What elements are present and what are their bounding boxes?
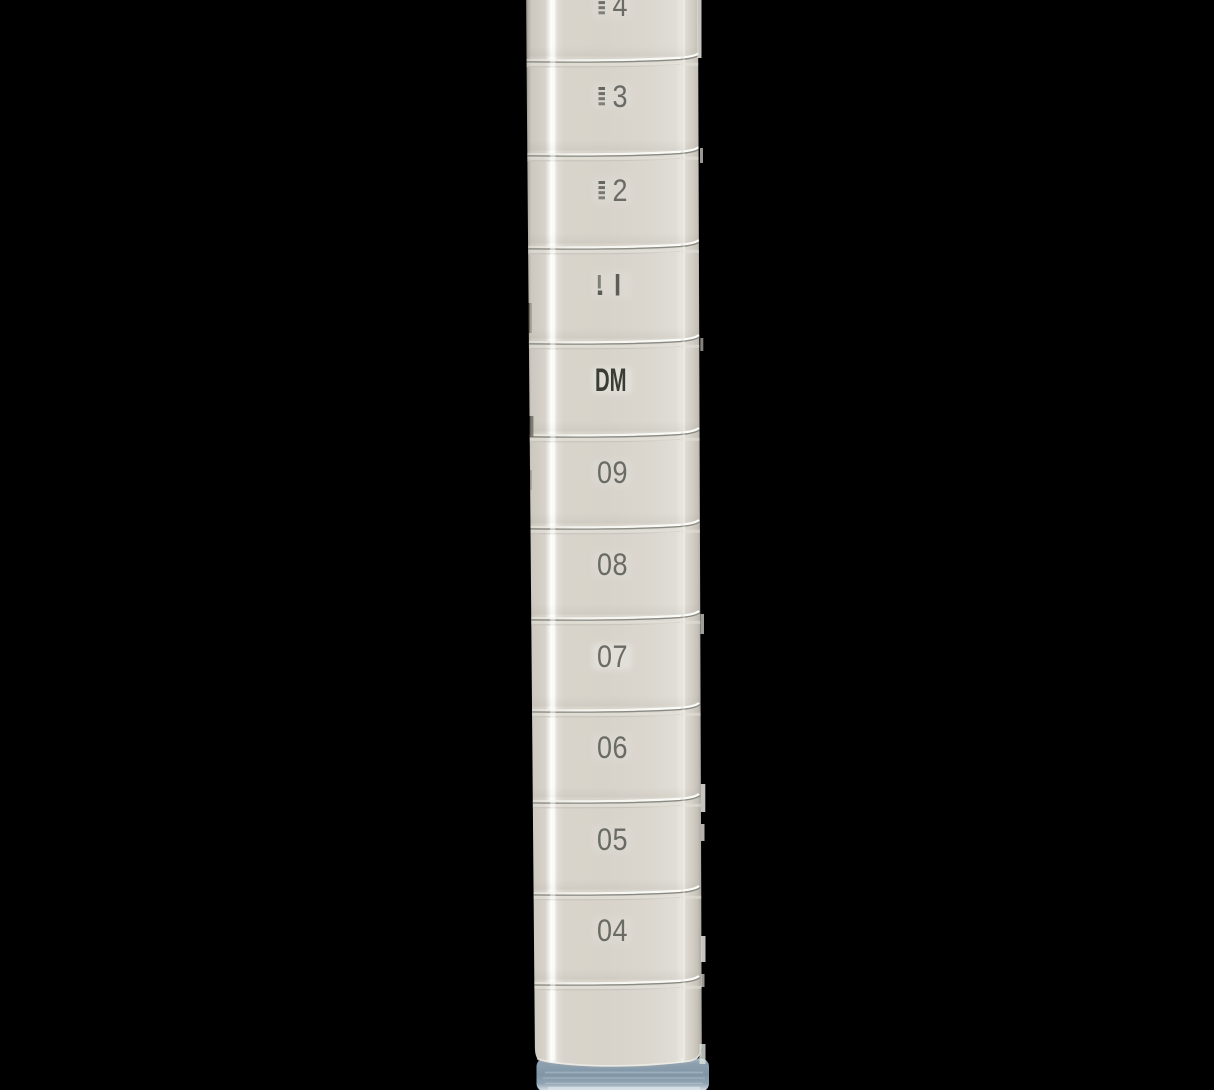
svg-text:07: 07	[597, 639, 628, 674]
svg-text:05: 05	[597, 822, 628, 857]
svg-text:3: 3	[613, 79, 628, 114]
svg-text:06: 06	[597, 730, 628, 765]
svg-text:2: 2	[613, 173, 628, 208]
svg-text:4: 4	[613, 0, 628, 24]
svg-text:DM: DM	[595, 362, 627, 398]
svg-text:08: 08	[597, 547, 628, 582]
svg-text:09: 09	[597, 455, 628, 490]
svg-text:04: 04	[597, 913, 628, 948]
